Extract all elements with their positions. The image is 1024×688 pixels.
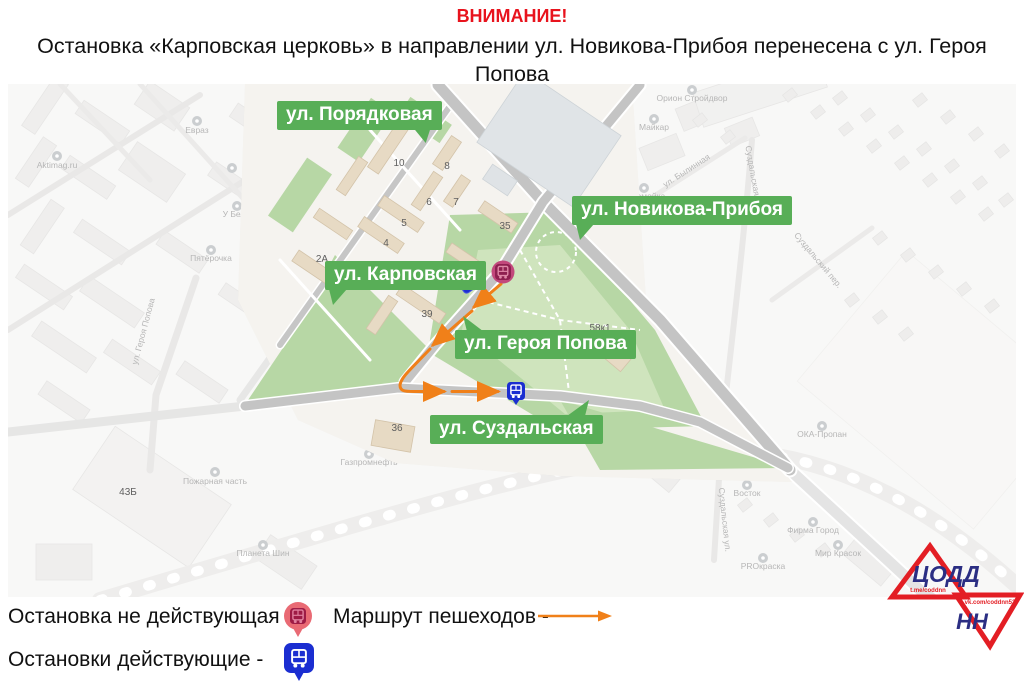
street-badge-geroya-popova: ул. Героя Попова — [455, 330, 636, 359]
svg-text:39: 39 — [421, 309, 433, 320]
logo-line2: НН — [956, 609, 989, 634]
street-badge-label: ул. Героя Попова — [464, 333, 627, 354]
legend-pedestrian-route-label: Маршрут пешеходов - — [333, 605, 549, 629]
legend-active-stops-label: Остановки действующие - — [8, 648, 263, 672]
street-badge-novikova-priboya: ул. Новикова-Прибоя — [572, 196, 792, 225]
logo-vk-handle: vk.com/coddnn52 — [965, 600, 1016, 606]
notice-line-1: Остановка «Карповская церковь» в направл… — [0, 33, 1024, 89]
logo-tg-handle: t.me/coddnn — [910, 588, 946, 594]
inactive-stop-marker[interactable] — [492, 261, 515, 284]
svg-text:5: 5 — [401, 218, 407, 229]
svg-text:43Б: 43Б — [119, 487, 137, 498]
svg-text:7: 7 — [453, 197, 459, 208]
badge-tail — [329, 289, 351, 305]
pedestrian-route-icon — [536, 607, 616, 625]
svg-text:8: 8 — [444, 161, 450, 172]
codd-nn-logo: ЦОДД t.me/coddnn vk.com/coddnn52 НН — [876, 536, 1024, 654]
street-badge-label: ул. Новикова-Прибоя — [581, 199, 783, 220]
badge-tail — [576, 224, 598, 240]
svg-text:6: 6 — [426, 197, 432, 208]
badge-tail — [463, 316, 483, 331]
badge-tail — [567, 400, 589, 416]
street-badge-poryadkovaya: ул. Порядковая — [277, 101, 442, 130]
legend-inactive-stop-label: Остановка не действующая - — [8, 605, 292, 629]
active-stop-icon — [282, 642, 316, 684]
street-badge-suzdalskaya: ул. Суздальская — [430, 415, 603, 444]
svg-text:35: 35 — [499, 221, 511, 232]
street-badge-label: ул. Суздальская — [439, 418, 594, 439]
street-badge-karpovskaya: ул. Карповская — [325, 261, 486, 290]
logo-line1: ЦОДД — [912, 561, 980, 587]
attention-title: ВНИМАНИЕ! — [0, 6, 1024, 27]
inactive-stop-icon — [281, 600, 315, 640]
svg-text:4: 4 — [383, 238, 389, 249]
street-badge-label: ул. Карповская — [334, 264, 477, 285]
svg-text:10: 10 — [393, 158, 405, 169]
street-badge-label: ул. Порядковая — [286, 104, 433, 125]
svg-text:36: 36 — [391, 423, 403, 434]
